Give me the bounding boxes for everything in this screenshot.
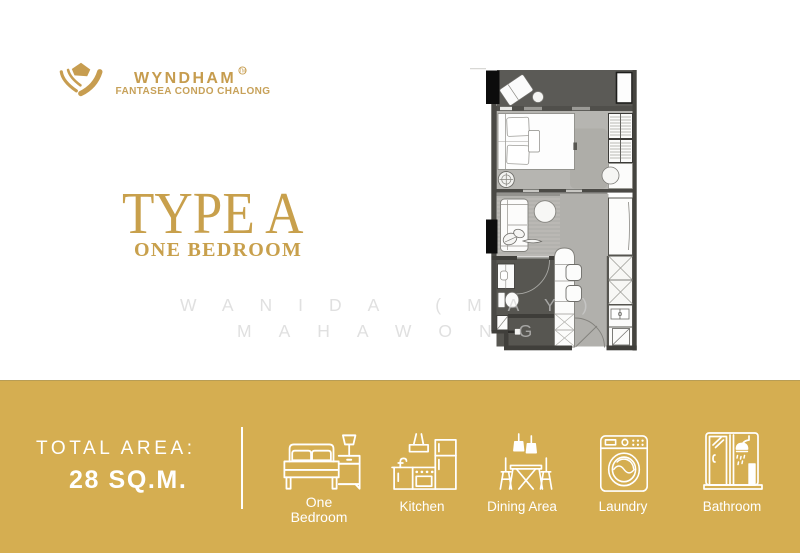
svg-text:TM: TM xyxy=(239,68,246,74)
